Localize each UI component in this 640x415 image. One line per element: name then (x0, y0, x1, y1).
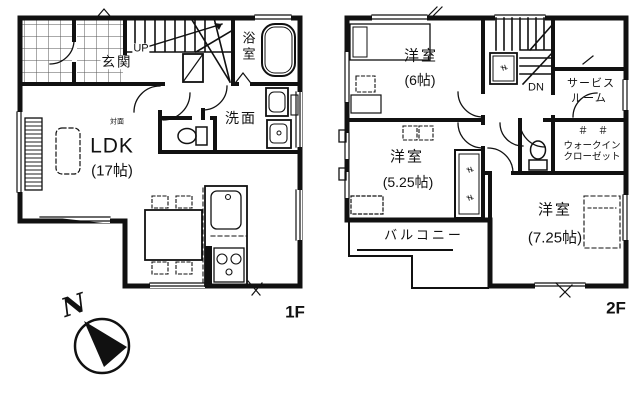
ldk-label: LDK (89, 136, 135, 157)
bedroom525-label: 洋室 (389, 150, 425, 165)
floor1-plan (16, 9, 302, 295)
bedroom525-size-label: (5.25帖) (382, 175, 435, 189)
bedroom725-size-label: (7.25帖) (527, 231, 583, 246)
floor1-label: 1F (284, 304, 306, 321)
entrance-label: 玄関 (101, 55, 134, 69)
floorplan-canvas: 玄関 UP 浴室 洗面 対面 LDK (17帖) 1F N 洋室 (6帖) DN… (0, 0, 640, 415)
desk-6 (351, 95, 381, 113)
wic-hanger-marks: ＃ ＃ (577, 127, 609, 137)
vanity-sink (267, 120, 291, 148)
bedroom725-label: 洋室 (537, 203, 573, 218)
washing-machine (266, 88, 288, 116)
dressers-525 (403, 126, 433, 140)
toilet-2f (529, 141, 547, 170)
compass (75, 319, 129, 373)
floor2-label: 2F (605, 300, 627, 317)
washroom-label: 洗面 (224, 111, 258, 125)
wic-label-line1: ウォークイン (562, 141, 621, 151)
bath-label: 浴室 (241, 31, 256, 63)
porch-tiles (22, 20, 72, 82)
bathtub (262, 24, 295, 76)
desk-525 (351, 196, 383, 214)
dining-chairs (152, 196, 192, 274)
ldk-note: 対面 (109, 119, 125, 126)
kitchen-counter (203, 186, 247, 286)
understairs-closet-diagonal (183, 54, 203, 82)
ldk-size-label: (17帖) (90, 164, 134, 179)
sofa (56, 128, 80, 174)
stairs-up-label: UP (132, 44, 149, 55)
service-room-label-line1: サービス (566, 79, 616, 90)
wic-label-line2: クローゼット (562, 152, 621, 162)
bedroom6-label: 洋室 (403, 49, 439, 64)
balcony-label: バルコニー (383, 229, 465, 242)
tv-board (25, 118, 42, 190)
stairs-down-label: DN (527, 83, 545, 94)
bed-725 (584, 196, 620, 248)
entrance-tiles (77, 20, 123, 82)
chair-6 (356, 76, 375, 92)
dining-table (145, 210, 202, 260)
toilet-1f (178, 127, 207, 145)
service-room-label-line2: ルーム (570, 94, 608, 105)
bedroom6-size-label: (6帖) (403, 73, 436, 87)
closet-525 (455, 150, 483, 218)
stairs-2f (496, 18, 553, 84)
